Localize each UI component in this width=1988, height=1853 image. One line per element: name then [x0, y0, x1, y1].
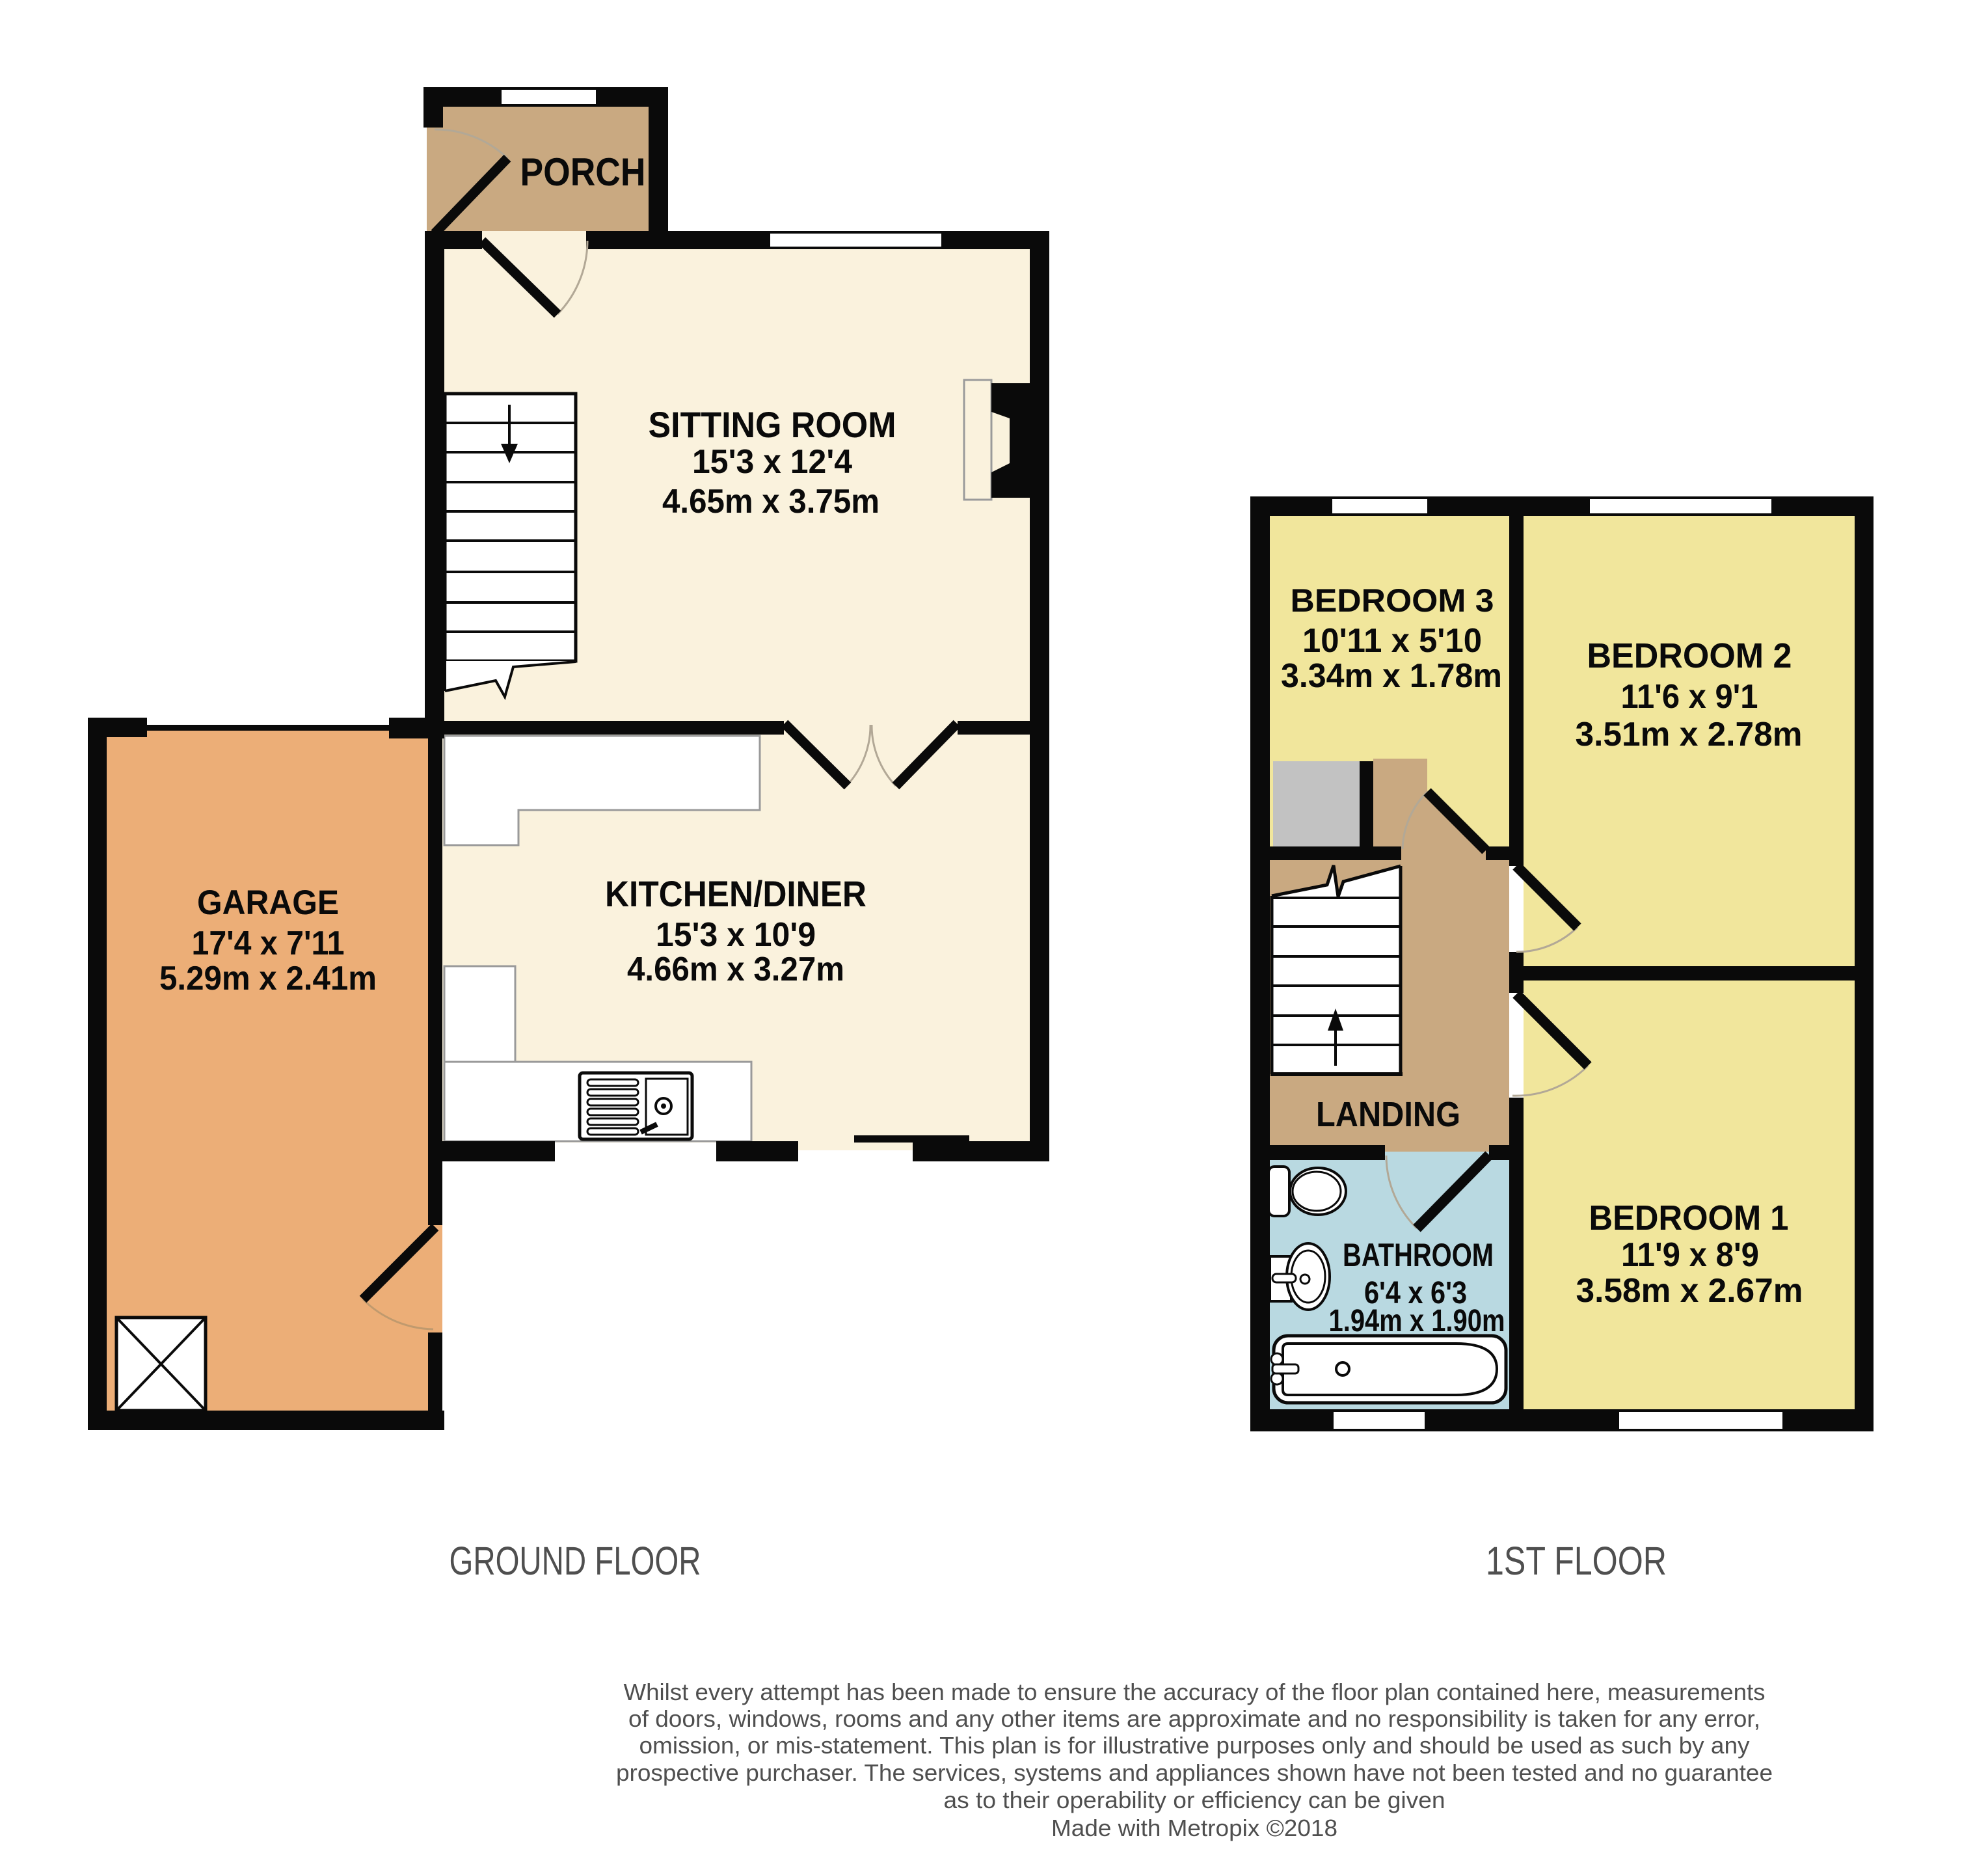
- svg-text:PORCH: PORCH: [520, 150, 646, 194]
- svg-text:10'11 x 5'10: 10'11 x 5'10: [1302, 622, 1482, 660]
- svg-text:3.34m x 1.78m: 3.34m x 1.78m: [1281, 657, 1502, 695]
- svg-text:BEDROOM 2: BEDROOM 2: [1587, 636, 1792, 675]
- svg-text:SITTING ROOM: SITTING ROOM: [649, 404, 896, 445]
- svg-text:omission, or mis-statement. Th: omission, or mis-statement. This plan is…: [639, 1732, 1750, 1759]
- svg-text:of doors, windows, rooms and a: of doors, windows, rooms and any other i…: [628, 1705, 1760, 1732]
- svg-text:11'9 x 8'9: 11'9 x 8'9: [1621, 1236, 1759, 1274]
- svg-text:11'6 x 9'1: 11'6 x 9'1: [1621, 678, 1758, 716]
- svg-text:BATHROOM: BATHROOM: [1343, 1237, 1494, 1273]
- svg-text:5.29m x 2.41m: 5.29m x 2.41m: [159, 960, 377, 997]
- svg-text:1.94m x 1.90m: 1.94m x 1.90m: [1329, 1304, 1505, 1338]
- svg-text:KITCHEN/DINER: KITCHEN/DINER: [605, 873, 866, 914]
- svg-text:GROUND FLOOR: GROUND FLOOR: [450, 1539, 701, 1583]
- svg-text:Made with Metropix ©2018: Made with Metropix ©2018: [1051, 1815, 1337, 1841]
- svg-text:prospective purchaser. The ser: prospective purchaser. The services, sys…: [616, 1759, 1773, 1786]
- svg-text:LANDING: LANDING: [1316, 1095, 1460, 1134]
- svg-text:4.66m x 3.27m: 4.66m x 3.27m: [627, 951, 844, 988]
- svg-text:1ST FLOOR: 1ST FLOOR: [1486, 1539, 1667, 1583]
- svg-text:as to their operability or eff: as to their operability or efficiency ca…: [944, 1787, 1445, 1813]
- svg-text:4.65m x 3.75m: 4.65m x 3.75m: [662, 483, 880, 521]
- svg-text:15'3 x 10'9: 15'3 x 10'9: [656, 916, 816, 954]
- svg-text:17'4 x 7'11: 17'4 x 7'11: [192, 925, 345, 962]
- svg-text:3.58m x 2.67m: 3.58m x 2.67m: [1576, 1272, 1803, 1310]
- svg-text:BEDROOM 1: BEDROOM 1: [1589, 1198, 1789, 1238]
- svg-text:15'3 x 12'4: 15'3 x 12'4: [692, 443, 852, 481]
- svg-text:3.51m x 2.78m: 3.51m x 2.78m: [1576, 716, 1803, 753]
- svg-text:BEDROOM 3: BEDROOM 3: [1291, 582, 1494, 619]
- svg-text:GARAGE: GARAGE: [197, 884, 339, 922]
- svg-text:Whilst every attempt has been: Whilst every attempt has been made to en…: [624, 1679, 1766, 1705]
